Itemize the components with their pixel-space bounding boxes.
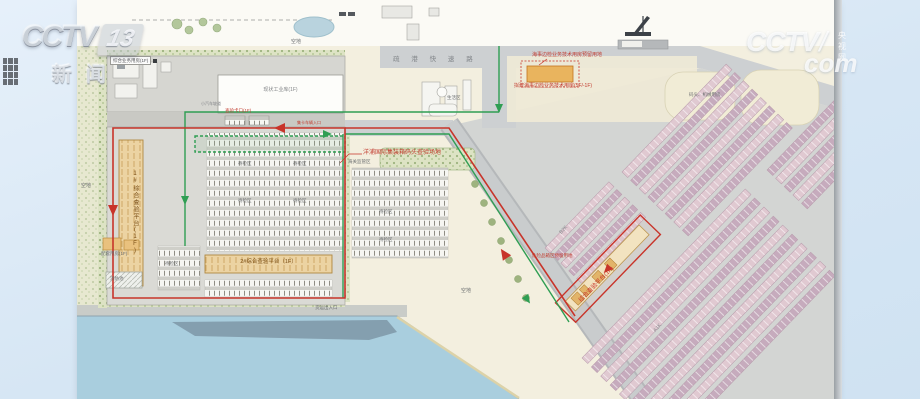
warehouse-label: 现状工业库(1F) (218, 88, 343, 93)
logo-cctv-text: CCTV (22, 20, 96, 53)
fire-pool-label: 消防池 (110, 277, 124, 282)
waiting-area-label: 待检区 (379, 210, 393, 215)
maritime-reserved-label: 海事边检业务技术用房预留用地 (532, 53, 602, 58)
network-watermark: CCTV/ 央视网 com (746, 26, 826, 58)
waiting-area-label: 待检区 (165, 262, 179, 267)
support-building (103, 238, 121, 250)
waiting-area-label: 待检区 (379, 238, 393, 243)
logo-subtitle: 新闻 (52, 58, 120, 87)
expressway-label: 疏 港 快 速 路 (393, 54, 478, 63)
open-land-label: 空地 (291, 40, 301, 45)
gate-canopy (249, 116, 269, 125)
open-land-label: 空地 (461, 289, 471, 294)
watermark-com: com (804, 48, 857, 79)
cargo-gate-label: 货运出入口 (315, 306, 338, 311)
terminal-label: 洋浦国际集装箱码头查验场地 (363, 150, 441, 156)
customs-area-label: 海关监管区 (348, 160, 371, 165)
maritime-proposed-label: 拟建海事边检业务技术用房(5F/-1F) (514, 84, 592, 89)
north-area (77, 0, 834, 46)
maritime-building (527, 66, 573, 82)
danger-reserved-label: 危险品箱区预留用地 (532, 254, 573, 259)
car-ramp-label: 小汽车坡道 (201, 102, 221, 106)
bottom-strip (0, 399, 920, 409)
legend-icon (3, 58, 18, 85)
waiting-area-label: 待检区 (238, 199, 252, 204)
waiting-area-label: 待检区 (238, 162, 252, 167)
site-plan: 疏 港 快 速 路 (77, 0, 834, 399)
channel-logo: CCTV13 新闻 (22, 20, 140, 55)
platform1-label: 1#综合查验平台(1F) (122, 146, 140, 280)
marker-square (153, 59, 157, 63)
gate-canopy (225, 116, 245, 125)
waiting-area-label: 待检区 (293, 199, 307, 204)
open-land-label: 空地 (81, 184, 91, 189)
platform2-label: 2#综合查验平台（1F） (205, 260, 332, 266)
wharf-rooms-label: 码头、机械用房 (689, 93, 721, 98)
logo-channel-number: 13 (96, 24, 143, 55)
truck-entrance-label: 集卡车辆入口 (297, 121, 321, 125)
waiting-area-label: 待检区 (293, 162, 307, 167)
broadcast-frame: 疏 港 快 速 路 (0, 0, 920, 409)
gate-checkpoint-label: 查验卡口(1F) (225, 109, 251, 114)
life-area-label: 生活区 (447, 96, 461, 101)
site-plan-svg: 疏 港 快 速 路 (77, 0, 834, 399)
support-rooms-label: 配套用房(1F) (101, 252, 127, 257)
